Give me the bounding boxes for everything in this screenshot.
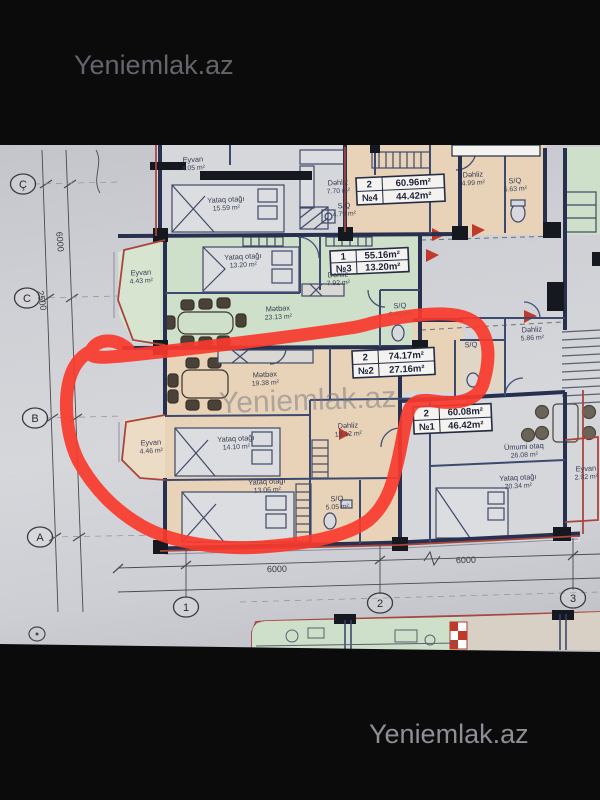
room-area: 5.05 m² xyxy=(325,503,349,511)
grid-bubble-label: Ç xyxy=(19,179,27,191)
grid-bubble-label: C xyxy=(23,293,31,305)
room-label: Dəhliz7.92 m² xyxy=(326,269,351,287)
room-name: Eyvan xyxy=(130,267,151,277)
room-label: Yataq otağı15.59 m² xyxy=(207,194,245,213)
room-area: 4.46 m² xyxy=(139,447,163,455)
room-area: 13.06 m² xyxy=(254,486,282,494)
room-area: 4.99 m² xyxy=(461,179,485,187)
room-name: Mətbəx xyxy=(266,303,291,313)
grid-bubble: B xyxy=(23,408,48,428)
room-name: S/Q xyxy=(330,494,343,504)
lower-building-strip xyxy=(29,610,600,650)
room-label: Dəhliz5.86 m² xyxy=(520,324,545,342)
room-label: Mətbəx23.13 m² xyxy=(264,303,293,321)
room-area: 18.12 m² xyxy=(335,430,363,438)
room-label: Eyvan4.43 m² xyxy=(129,267,154,285)
grid-bubble-label: 2 xyxy=(377,598,383,610)
grid-bubble-label: A xyxy=(36,532,44,544)
room-label: S/Q xyxy=(464,340,477,350)
grid-bubble-label: 3 xyxy=(570,593,576,605)
grid-bubble: 2 xyxy=(368,593,393,613)
watermark-bottom: Yeniemlak.az xyxy=(369,719,529,750)
cutoff-unit-table xyxy=(452,145,540,156)
room-label: Eyvan2.92 m² xyxy=(574,463,599,481)
room-area: 13.20 m² xyxy=(230,261,258,269)
room-area: 23.13 m² xyxy=(265,313,293,321)
dimension-label: 6000 xyxy=(456,555,476,566)
room-label: Yataq otağı13.06 m² xyxy=(248,476,286,495)
room-label: Dəhliz4.99 m² xyxy=(461,169,486,187)
sofa-icon xyxy=(300,150,345,164)
unit-table-cell: №1 xyxy=(419,421,436,433)
room-name: S/Q xyxy=(393,301,406,311)
room-area: 7.92 m² xyxy=(326,279,350,287)
unit-table-cell: 27.16m² xyxy=(389,363,425,376)
room-area: 14.10 m² xyxy=(223,443,251,451)
room-label: Dəhliz7.70 m² xyxy=(326,177,351,195)
unit-table-cell: №2 xyxy=(358,366,374,378)
room-name: S/Q xyxy=(337,201,350,211)
room-area: 7.70 m² xyxy=(326,187,350,195)
bed-icon xyxy=(182,492,294,542)
room-label: Yataq otağı14.10 m² xyxy=(217,433,255,452)
screenshot-root: { "watermarks": { "top": "Yeniemlak.az",… xyxy=(0,0,600,800)
room-name: Dəhliz xyxy=(327,177,348,187)
room-name: Dəhliz xyxy=(462,169,483,179)
unit-table-cell: 46.42m² xyxy=(448,419,484,432)
shaft-hatch-icon xyxy=(450,622,467,649)
room-label: Yataq otağı20.34 m² xyxy=(499,472,537,491)
room-area: 26.08 m² xyxy=(511,451,539,459)
room-name: Dəhliz xyxy=(337,420,358,430)
unit-table: 260.96m²№444.42m² xyxy=(356,174,445,205)
room-name: Eyvan xyxy=(182,154,203,164)
room-name: S/Q xyxy=(464,340,477,350)
room-area: 2.92 m² xyxy=(574,473,598,481)
unit-table-cell: 13.20m² xyxy=(365,261,401,274)
room-area: 4.79 m² xyxy=(332,210,356,218)
room-name: Mətbəx xyxy=(253,369,278,379)
room-label: Eyvan4.46 m² xyxy=(139,437,164,455)
unit-table-cell: 44.42m² xyxy=(396,190,432,203)
room-area: 4.05 m² xyxy=(181,164,205,172)
room-label: Yataq otağı13.20 m² xyxy=(224,251,262,270)
grid-bubble-label: B xyxy=(31,413,38,425)
grid-bubble: 1 xyxy=(174,597,199,617)
grid-bubble: A xyxy=(28,527,53,547)
watermark-top: Yeniemlak.az xyxy=(74,50,234,81)
unit-table-cell: 2 xyxy=(362,352,368,363)
unit-table: 274.17m²№227.16m² xyxy=(352,347,435,378)
room-area: 4.43 m² xyxy=(129,277,153,285)
dimension-label: 6000 xyxy=(54,231,66,252)
unit-table-cell: 60.96m² xyxy=(395,177,431,190)
dimension-label: 2500 xyxy=(35,290,48,311)
room-name: Dəhliz xyxy=(327,269,348,279)
grid-bubble-label: 1 xyxy=(183,602,189,614)
room-name: Dəhliz xyxy=(521,324,542,334)
unit-table-cell: 2 xyxy=(423,408,429,419)
room-area: 15.59 m² xyxy=(213,204,241,212)
room-area: 5.63 m² xyxy=(503,185,527,193)
dimension-label: 6000 xyxy=(267,564,287,575)
watermark-middle: Yeniemlak.az xyxy=(218,381,396,421)
room-name: Eyvan xyxy=(140,437,161,447)
unit-table-cell: №4 xyxy=(362,192,379,204)
bed-icon xyxy=(436,488,508,538)
unit-table-cell: 74.17m² xyxy=(388,350,424,363)
grid-bubble: Ç xyxy=(11,174,36,194)
room-name: S/Q xyxy=(508,176,521,186)
room-area: 5.86 m² xyxy=(520,334,544,342)
unit-table-cell: 55.16m² xyxy=(364,249,400,262)
room-name: Eyvan xyxy=(575,463,596,473)
grid-bubble: 3 xyxy=(561,588,586,608)
room-label: Eyvan4.05 m² xyxy=(181,154,206,172)
room-area: 20.34 m² xyxy=(505,482,533,490)
unit-table-cell: 2 xyxy=(366,179,372,190)
